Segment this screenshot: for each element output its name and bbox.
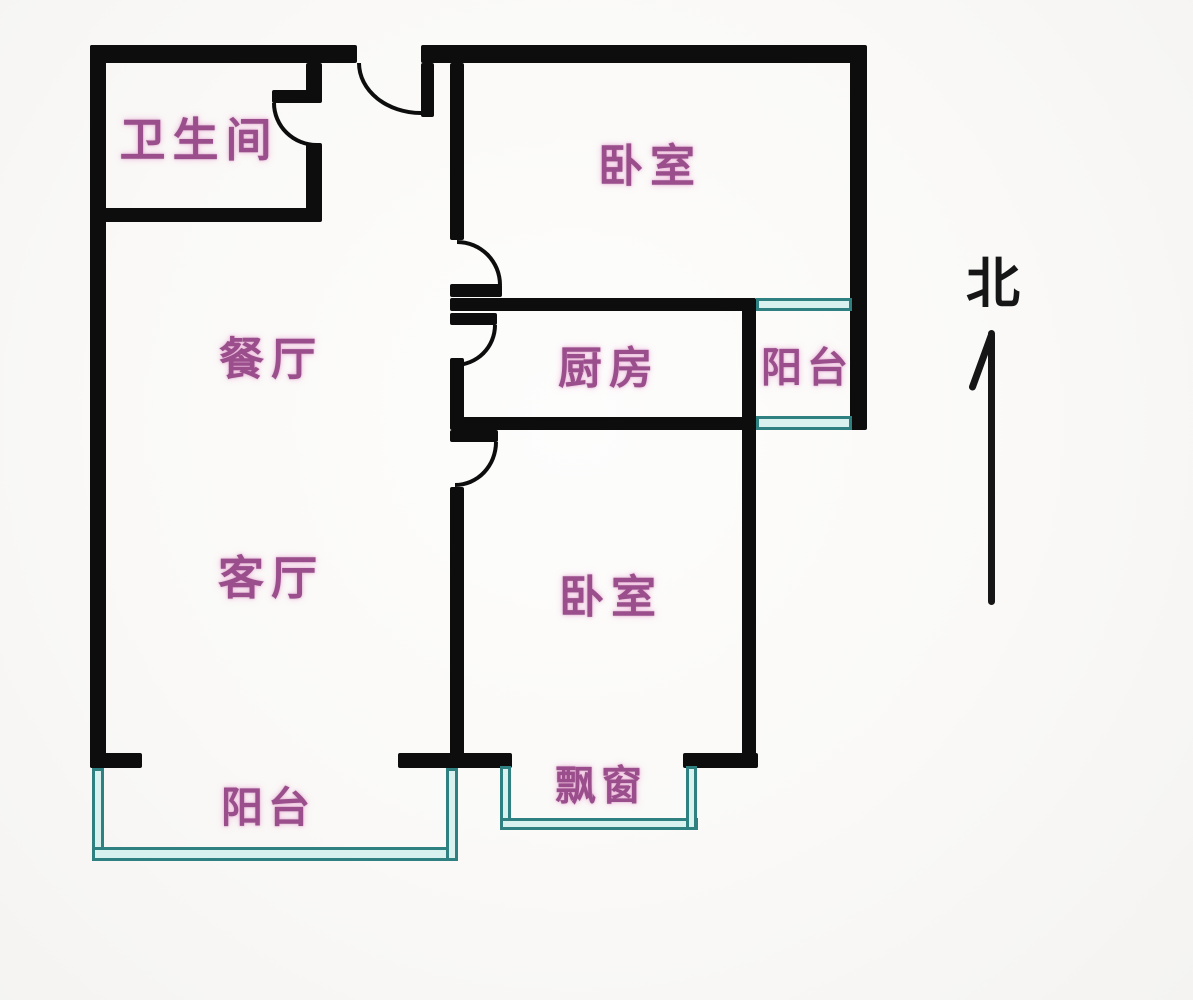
- bedroom-north-door-header: [450, 284, 502, 297]
- bedroom-south-door-header: [450, 430, 498, 442]
- bedroom-south-door-arc: [455, 442, 498, 487]
- wall-kitchen-south: [450, 417, 756, 430]
- window-balcony-south-bottom: [92, 847, 458, 861]
- bathroom-door-arc: [272, 103, 317, 147]
- kitchen-door-header: [450, 313, 497, 325]
- room-label-balcony-south: 阳台: [221, 787, 315, 829]
- floor-plan: 卫生间 卧室 餐厅 厨房 阳台 客厅 卧室 阳台 飘窗 北: [0, 0, 1193, 1000]
- room-label-balcony-east: 阳台: [761, 348, 853, 389]
- wall-top-west: [90, 45, 357, 63]
- window-bay-east: [686, 766, 697, 830]
- window-bay-bottom: [500, 818, 698, 830]
- room-label-bathroom: 卫生间: [120, 117, 279, 163]
- room-label-bedroom-north: 卧室: [598, 144, 702, 189]
- window-balcony-east-south: [756, 416, 852, 430]
- wall-south-living-stub: [90, 753, 142, 768]
- wall-bathroom-east-lower: [306, 143, 322, 222]
- room-label-kitchen: 厨房: [558, 347, 660, 391]
- wall-central-mid: [450, 358, 464, 420]
- wall-kitchen-north: [450, 298, 756, 311]
- wall-west: [90, 45, 106, 768]
- entry-door-leaf: [421, 63, 434, 117]
- wall-bathroom-south: [90, 208, 320, 222]
- compass-north-label: 北: [966, 256, 1020, 310]
- wall-top-east: [421, 45, 866, 63]
- room-label-dining-room: 餐厅: [219, 337, 323, 382]
- room-label-living-room: 客厅: [218, 555, 324, 601]
- bedroom-north-door-arc: [457, 240, 502, 285]
- wall-central-upper: [450, 63, 464, 240]
- wall-east-divider: [742, 298, 756, 768]
- room-label-bedroom-south: 卧室: [559, 575, 663, 620]
- room-label-bay-window: 飘窗: [555, 766, 647, 807]
- window-bedroom-north: [756, 298, 852, 311]
- entry-door-arc: [357, 63, 421, 115]
- wall-central-lower: [450, 487, 464, 768]
- bathroom-door-leaf: [272, 90, 322, 103]
- window-balcony-south-east: [446, 768, 458, 861]
- north-arrow-icon: [988, 330, 995, 605]
